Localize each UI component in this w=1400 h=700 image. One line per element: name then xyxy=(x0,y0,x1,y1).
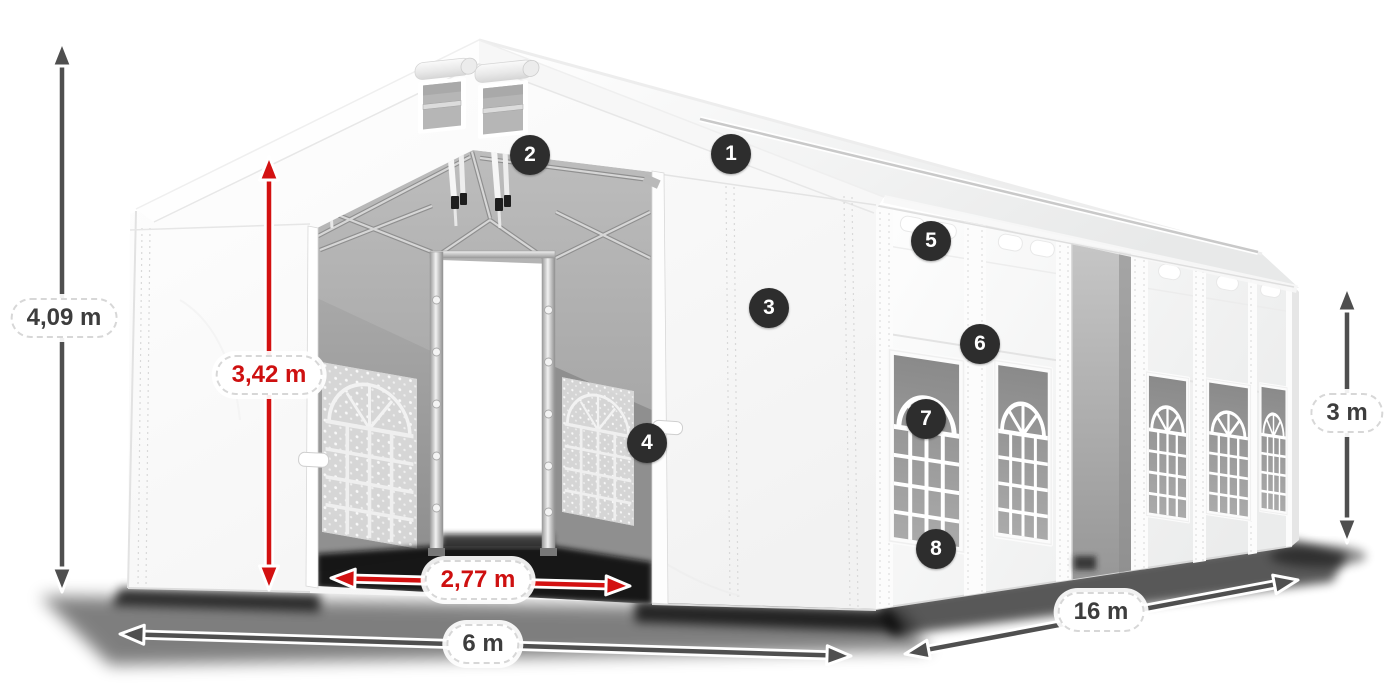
dimension-label-total-height: 4,09 m xyxy=(11,298,118,338)
side-window xyxy=(1205,377,1252,522)
door-pull-strap xyxy=(298,452,329,468)
side-window xyxy=(993,358,1053,547)
tent-illustration xyxy=(0,0,1400,700)
interior-mesh-window xyxy=(562,377,634,526)
side-window xyxy=(1145,370,1190,524)
dimension-label-entrance-height: 3,42 m xyxy=(216,355,323,395)
callout-8[interactable]: 8 xyxy=(916,529,956,569)
dimension-label-entrance-width: 2,77 m xyxy=(425,560,532,600)
tent-dimension-diagram: 4,09 m 3,42 m 2,77 m 6 m 16 m 3 m 1 2 3 … xyxy=(0,0,1400,700)
dimension-label-side-length: 16 m xyxy=(1058,592,1145,632)
callout-1[interactable]: 1 xyxy=(711,134,751,174)
callout-2[interactable]: 2 xyxy=(510,135,550,175)
side-doorway-opening xyxy=(1072,242,1131,579)
callout-4[interactable]: 4 xyxy=(627,423,667,463)
dimension-label-front-width: 6 m xyxy=(446,624,519,664)
callout-7[interactable]: 7 xyxy=(906,399,946,439)
callout-5[interactable]: 5 xyxy=(911,221,951,261)
rear-opening xyxy=(441,260,553,550)
dimension-label-side-height: 3 m xyxy=(1310,393,1383,433)
interior-mesh-window xyxy=(322,362,417,549)
side-window xyxy=(887,347,966,555)
callout-6[interactable]: 6 xyxy=(960,324,1000,364)
entrance-opening xyxy=(317,148,652,604)
callout-3[interactable]: 3 xyxy=(749,288,789,328)
side-window xyxy=(1259,382,1288,516)
